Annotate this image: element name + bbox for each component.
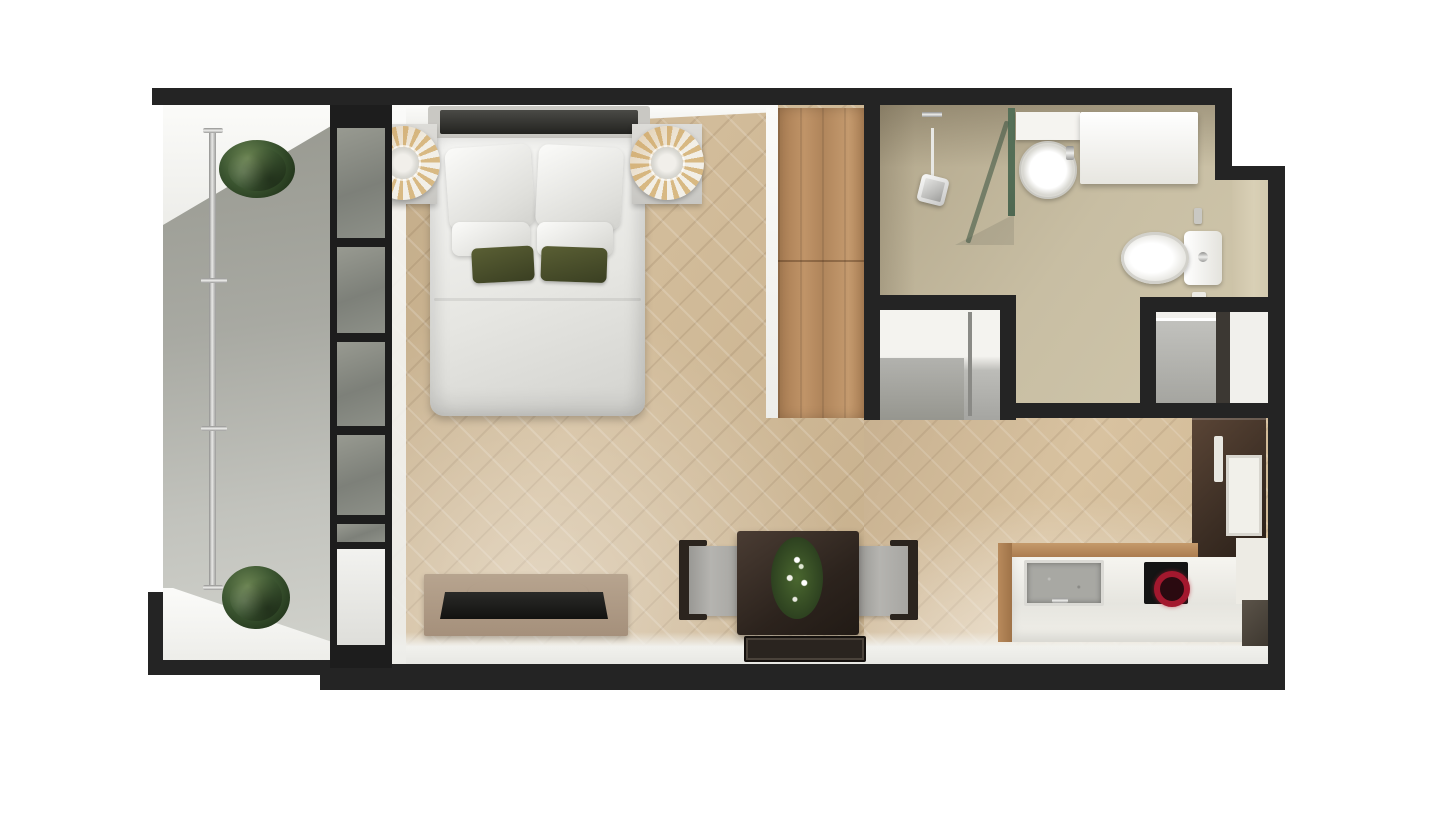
pillow-right — [535, 144, 624, 230]
chair-left-arm-top — [679, 540, 707, 546]
kitchen-counter-side-edge — [998, 543, 1012, 642]
vanity-ledge — [1016, 112, 1080, 140]
wardrobe-seam — [778, 260, 866, 262]
closet-left-appliance — [880, 358, 964, 420]
headboard — [440, 110, 638, 134]
floor-mat — [744, 636, 866, 662]
balcony-railing — [209, 128, 216, 590]
fan-lamp-center — [387, 147, 418, 178]
glass-pane-1 — [337, 128, 385, 238]
counter-corner-shadow — [1242, 600, 1268, 646]
closet-right-divider — [1216, 312, 1230, 403]
induction-hob — [1144, 562, 1188, 604]
balcony-plant-top — [219, 140, 295, 198]
wardrobe — [778, 108, 866, 418]
basin-faucet — [1066, 146, 1074, 160]
kitchen-counter-back-edge — [998, 543, 1198, 557]
shower-glass-edge — [1008, 108, 1015, 216]
toilet-sprayer — [1194, 208, 1202, 224]
wall-balcony-bottom — [148, 660, 330, 675]
wall-closet-left-right — [1000, 295, 1016, 420]
cabinet-handle — [1214, 436, 1223, 482]
glass-pane-4 — [337, 435, 385, 515]
wall-closet-right-left — [1140, 297, 1156, 418]
fan-lamp-right — [630, 126, 704, 200]
wall-bottom — [320, 664, 1285, 690]
toilet-bowl — [1121, 232, 1189, 284]
window-wall-lower-panel — [337, 549, 385, 645]
vanity-counter — [1080, 112, 1198, 184]
wall-balcony-corner — [148, 592, 163, 672]
toilet-flush-button — [1198, 252, 1208, 262]
glass-pane-2 — [337, 247, 385, 333]
wall-top — [152, 88, 1232, 105]
wardrobe-side-panel — [766, 108, 778, 418]
fan-lamp-center — [651, 147, 682, 178]
shower-bracket — [922, 112, 942, 117]
cabinet-panel — [1226, 455, 1262, 536]
hob-burner — [1154, 571, 1190, 607]
chair-right-frame — [908, 540, 918, 620]
duvet-crease — [434, 298, 641, 301]
accent-pillow-right — [540, 246, 607, 283]
closet-left-divider — [968, 312, 972, 416]
wall-closet-right-top — [1140, 297, 1285, 312]
railing-crossbar-top — [201, 278, 227, 283]
wall-shower-bottom — [864, 295, 1014, 310]
tall-cabinet-fridge — [1192, 418, 1266, 558]
balcony-plant-bottom — [222, 566, 290, 629]
railing-crossbar-bottom — [201, 426, 227, 431]
closet-left-interior — [880, 310, 1000, 420]
floorplan-canvas — [0, 0, 1439, 819]
chair-left-frame — [679, 540, 689, 620]
accent-pillow-left — [471, 245, 535, 283]
chair-right-arm-bottom — [890, 614, 918, 620]
railing-end-bottom — [203, 585, 223, 590]
glazed-window-wall — [330, 105, 392, 668]
chair-left-arm-bottom — [679, 614, 707, 620]
closet-right-appliance — [1156, 318, 1216, 403]
glass-pane-5 — [337, 524, 385, 542]
sink-faucet — [1052, 598, 1068, 603]
bed — [428, 106, 650, 416]
dining-chair-right — [850, 546, 916, 616]
kitchen-counter-return — [1236, 538, 1268, 604]
pillow-left — [444, 143, 536, 231]
table-plant — [771, 537, 823, 619]
tv — [440, 592, 608, 619]
closet-right-interior — [1156, 312, 1268, 403]
wall-bathroom-left — [864, 105, 880, 420]
wall-right — [1268, 166, 1285, 690]
railing-end-top — [203, 128, 223, 133]
chair-right-arm-top — [890, 540, 918, 546]
glass-pane-3 — [337, 342, 385, 426]
